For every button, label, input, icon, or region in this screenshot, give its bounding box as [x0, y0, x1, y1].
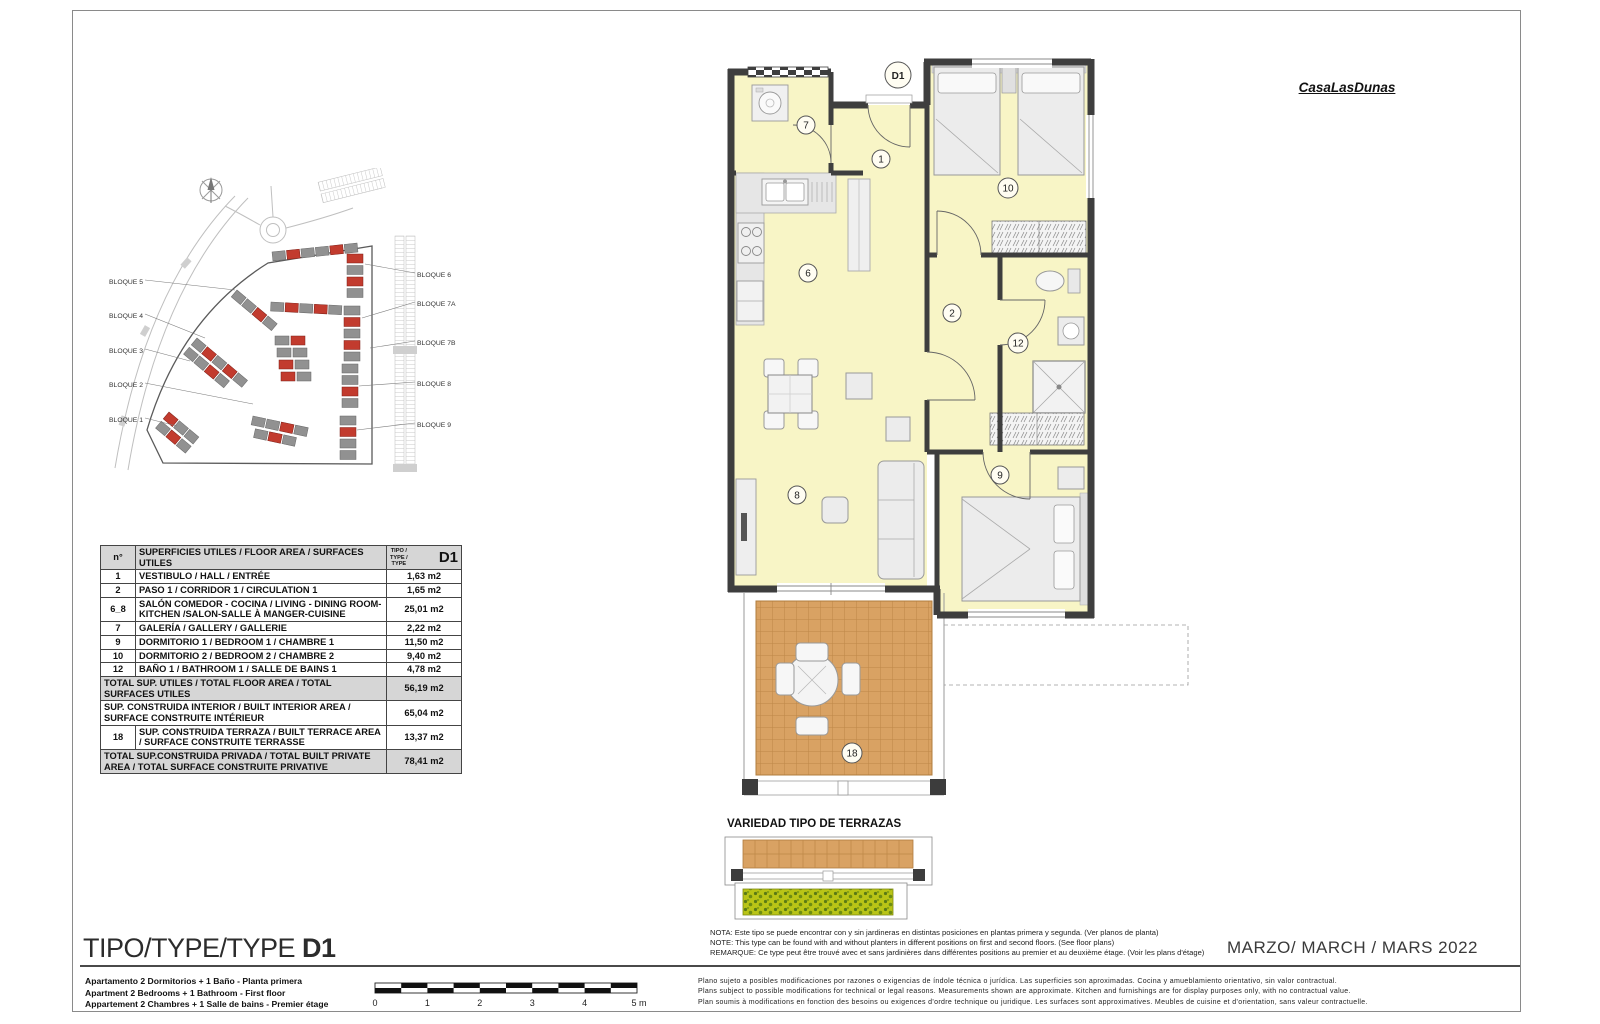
- type-heading-code: D1: [302, 933, 336, 963]
- planter: [743, 889, 893, 915]
- bloque-label: BLOQUE 5: [109, 279, 143, 286]
- terrace: [742, 593, 946, 795]
- svg-text:2: 2: [949, 309, 955, 320]
- compass-icon: [200, 177, 222, 203]
- note-en: NOTE: This type can be found with and wi…: [710, 938, 1224, 948]
- note-fr: REMARQUE: Ce type peut être trouvé avec …: [710, 948, 1224, 958]
- apartment-desc-es: Apartamento 2 Dormitorios + 1 Baño - Pla…: [85, 976, 328, 988]
- room-label-terrace: 18: [842, 743, 862, 763]
- legal-text: Plano sujeto a posibles modificaciones p…: [698, 977, 1496, 1008]
- svg-text:18: 18: [846, 749, 858, 760]
- scale-label: 4: [582, 998, 587, 1008]
- type-heading-label: TIPO/TYPE/TYPE: [83, 933, 302, 963]
- surface-area-table: n° SUPERFICIES UTILES / FLOOR AREA / SUR…: [100, 545, 462, 774]
- svg-text:9: 9: [997, 471, 1003, 482]
- brand-logo: CasaLasDunas: [1282, 80, 1412, 95]
- bloque-label: BLOQUE 8: [417, 381, 451, 388]
- scale-label: 5 m: [631, 998, 646, 1008]
- table-row: 1 VESTIBULO / HALL / ENTRÉE 1,63 m2: [101, 570, 462, 584]
- table-row: 18 SUP. CONSTRUIDA TERRAZA / BUILT TERRA…: [101, 725, 462, 749]
- date-stamp: MARZO/ MARCH / MARS 2022: [1150, 938, 1478, 958]
- table-row: 9 DORMITORIO 1 / BEDROOM 1 / CHAMBRE 1 1…: [101, 635, 462, 649]
- col-header-desc: SUPERFICIES UTILES / FLOOR AREA / SURFAC…: [136, 546, 387, 570]
- type-label-line: TIPO /: [390, 548, 408, 554]
- room-label-galeria: 7: [797, 116, 815, 134]
- bloque-label: BLOQUE 1: [109, 417, 143, 424]
- bloque-label: BLOQUE 7B: [417, 340, 456, 347]
- apartment-desc-fr: Appartement 2 Chambres + 1 Salle de bain…: [85, 999, 328, 1011]
- bloque-label: BLOQUE 6: [417, 272, 451, 279]
- svg-text:8: 8: [794, 491, 800, 502]
- scale-label: 2: [477, 998, 482, 1008]
- table-total-row: TOTAL SUP.CONSTRUIDA PRIVADA / TOTAL BUI…: [101, 750, 462, 774]
- door-gaps: [924, 352, 930, 400]
- plan-title-circle: D1: [885, 62, 911, 88]
- table-row: 6_8 SALÓN COMEDOR - COCINA / LIVING - DI…: [101, 597, 462, 621]
- legal-es: Plano sujeto a posibles modificaciones p…: [698, 977, 1496, 987]
- notes-block: NOTA: Este tipo se puede encontrar con y…: [710, 928, 1224, 958]
- svg-text:6: 6: [805, 269, 811, 280]
- svg-text:1: 1: [878, 155, 884, 166]
- type-heading: TIPO/TYPE/TYPE D1: [83, 933, 336, 964]
- table-row: 7 GALERÍA / GALLERY / GALLERIE 2,22 m2: [101, 622, 462, 636]
- bloque-label: BLOQUE 9: [417, 422, 451, 429]
- legal-fr: Plan soumis à modifications en fonction …: [698, 998, 1496, 1008]
- scale-label: 0: [372, 998, 377, 1008]
- room-label-bedroom2: 10: [998, 178, 1018, 198]
- plan-sheet: CasaLasDunas: [0, 0, 1600, 1024]
- type-code: D1: [439, 549, 458, 566]
- entry-threshold: [866, 95, 912, 103]
- terrace-section-title: VARIEDAD TIPO DE TERRAZAS: [727, 818, 901, 830]
- svg-text:7: 7: [803, 121, 809, 132]
- room-label-living: 8: [788, 486, 806, 504]
- vent-grille: [748, 67, 828, 77]
- table-row: 12 BAÑO 1 / BATHROOM 1 / SALLE DE BAINS …: [101, 663, 462, 677]
- apartment-description: Apartamento 2 Dormitorios + 1 Baño - Pla…: [85, 976, 328, 1011]
- alt-terrace-dashed: [944, 625, 1188, 685]
- bloque-label: BLOQUE 2: [109, 382, 143, 389]
- footer-divider: [80, 965, 1520, 967]
- legal-en: Plans subject to possible modifications …: [698, 987, 1496, 997]
- type-label-line: TYPE: [390, 561, 408, 567]
- floor-plan: D1 7 1 10 6 2 12 8 9: [700, 55, 1200, 803]
- table-total-row: TOTAL SUP. UTILES / TOTAL FLOOR AREA / T…: [101, 676, 462, 700]
- scale-label: 1: [425, 998, 430, 1008]
- svg-text:D1: D1: [892, 71, 905, 82]
- table-row: SUP. CONSTRUIDA INTERIOR / BUILT INTERIO…: [101, 701, 462, 725]
- type-label-line: TYPE /: [390, 555, 408, 561]
- note-es: NOTA: Este tipo se puede encontrar con y…: [710, 928, 1224, 938]
- table-header-row: n° SUPERFICIES UTILES / FLOOR AREA / SUR…: [101, 546, 462, 570]
- terrace-variant-drawing: [723, 835, 938, 925]
- room-label-bedroom1: 9: [991, 466, 1009, 484]
- room-label-corridor: 2: [943, 304, 961, 322]
- room-label-hall: 1: [872, 150, 890, 168]
- col-header-num: n°: [101, 546, 136, 570]
- svg-text:10: 10: [1002, 184, 1014, 195]
- scale-bar: 0 1 2 3 4 5 m: [372, 980, 662, 1010]
- bloque-label: BLOQUE 7A: [417, 301, 456, 308]
- apartment-desc-en: Apartment 2 Bedrooms + 1 Bathroom - Firs…: [85, 988, 328, 1000]
- table-row: 2 PASO 1 / CORRIDOR 1 / CIRCULATION 1 1,…: [101, 584, 462, 598]
- table-row: 10 DORMITORIO 2 / BEDROOM 2 / CHAMBRE 2 …: [101, 649, 462, 663]
- galeria-fixtures: [752, 85, 788, 121]
- col-header-type: TIPO / TYPE / TYPE D1: [387, 546, 462, 570]
- scale-label: 3: [530, 998, 535, 1008]
- room-label-kitchen: 6: [799, 264, 817, 282]
- bloque-label: BLOQUE 4: [109, 313, 143, 320]
- bloque-label: BLOQUE 3: [109, 348, 143, 355]
- site-plan: BLOQUE 5 BLOQUE 4 BLOQUE 3 BLOQUE 2 BLOQ…: [85, 168, 485, 493]
- svg-text:12: 12: [1012, 339, 1024, 350]
- room-label-bathroom: 12: [1008, 333, 1028, 353]
